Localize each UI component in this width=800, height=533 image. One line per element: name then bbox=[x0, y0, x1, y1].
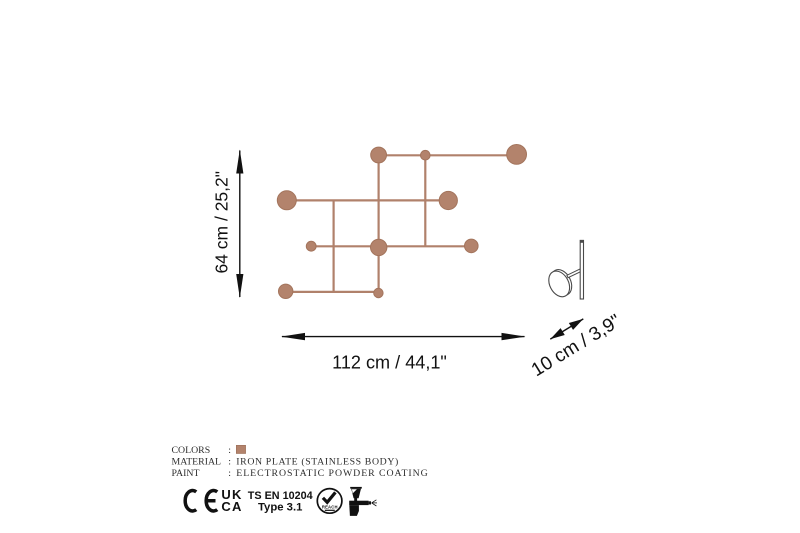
svg-text:64 cm / 25,2": 64 cm / 25,2" bbox=[212, 171, 232, 274]
svg-text:MATERIAL: MATERIAL bbox=[172, 457, 222, 468]
svg-text:COLORS: COLORS bbox=[172, 445, 211, 456]
svg-text::: : bbox=[228, 445, 231, 456]
svg-text:IRON PLATE (STAINLESS BODY): IRON PLATE (STAINLESS BODY) bbox=[236, 457, 399, 468]
svg-text:ELECTROSTATIC POWDER COATING: ELECTROSTATIC POWDER COATING bbox=[236, 468, 428, 479]
svg-text::: : bbox=[228, 457, 231, 468]
svg-text:TS EN 10204: TS EN 10204 bbox=[248, 490, 313, 502]
svg-text:CA: CA bbox=[221, 499, 242, 514]
svg-text:Type 3.1: Type 3.1 bbox=[258, 502, 302, 514]
svg-text::: : bbox=[228, 468, 231, 479]
svg-text:PAINT: PAINT bbox=[172, 468, 200, 479]
svg-text:112 cm / 44,1": 112 cm / 44,1" bbox=[332, 353, 447, 373]
svg-text:REACH: REACH bbox=[322, 504, 338, 509]
